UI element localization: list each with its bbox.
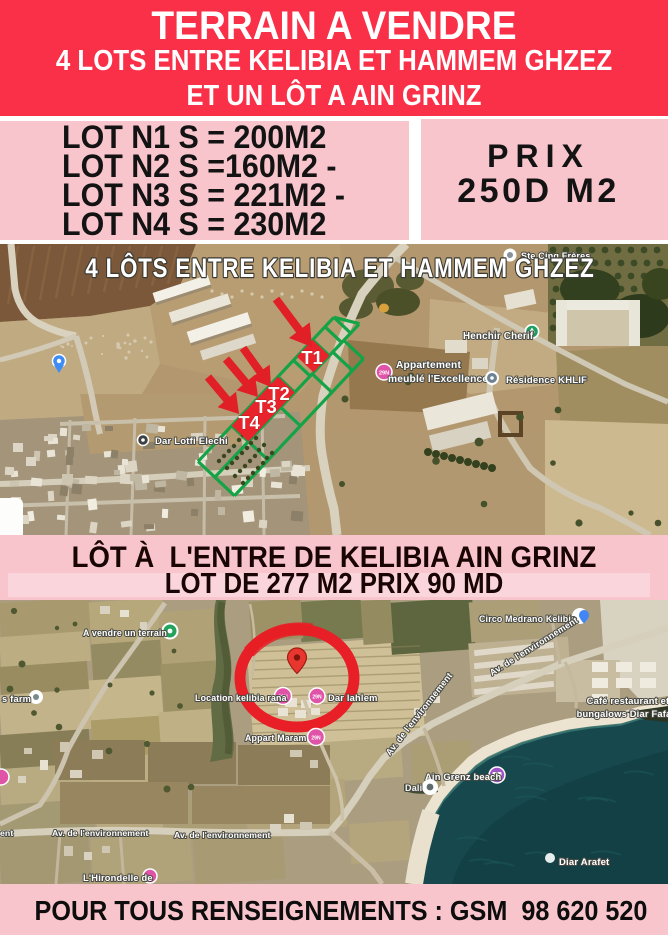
- svg-text:A vendre un terrain: A vendre un terrain: [83, 628, 167, 638]
- svg-text:Av. de l'environnement: Av. de l'environnement: [52, 828, 148, 838]
- svg-text:Dar lahlem: Dar lahlem: [328, 693, 378, 703]
- svg-text:L'Hirondelle de: L'Hirondelle de: [83, 873, 153, 883]
- svg-text:Henchir Cherif: Henchir Cherif: [463, 331, 534, 342]
- svg-text:Appart Maram: Appart Maram: [245, 733, 307, 743]
- svg-text:4 LÔTS ENTRE KELIBIA ET HAMMEM: 4 LÔTS ENTRE KELIBIA ET HAMMEM GHZEZ: [85, 253, 594, 283]
- svg-text:s farm: s farm: [2, 694, 31, 704]
- svg-text:T4: T4: [238, 412, 260, 433]
- svg-text:29N: 29N: [312, 695, 322, 701]
- svg-text:Dar Lotfi Elechi: Dar Lotfi Elechi: [155, 436, 228, 447]
- svg-text:Av. de l'environnement: Av. de l'environnement: [174, 830, 270, 840]
- svg-text:Appartement: Appartement: [396, 360, 461, 371]
- svg-text:Résidence KHLIF: Résidence KHLIF: [506, 375, 587, 386]
- svg-text:Location kelibia rana: Location kelibia rana: [195, 693, 287, 703]
- svg-text:Diar Arafet: Diar Arafet: [559, 857, 610, 868]
- svg-text:T1: T1: [301, 347, 323, 368]
- svg-text:meublé l'Excellence: meublé l'Excellence: [388, 374, 488, 385]
- svg-text:Dali: Dali: [405, 783, 422, 793]
- svg-text:Ain Grenz beach: Ain Grenz beach: [425, 772, 501, 782]
- svg-text:ent: ent: [0, 828, 13, 838]
- svg-text:bungalows Diar Fafa: bungalows Diar Fafa: [577, 709, 668, 719]
- svg-text:Café restaurant et: Café restaurant et: [587, 696, 668, 706]
- svg-text:29N: 29N: [311, 736, 321, 742]
